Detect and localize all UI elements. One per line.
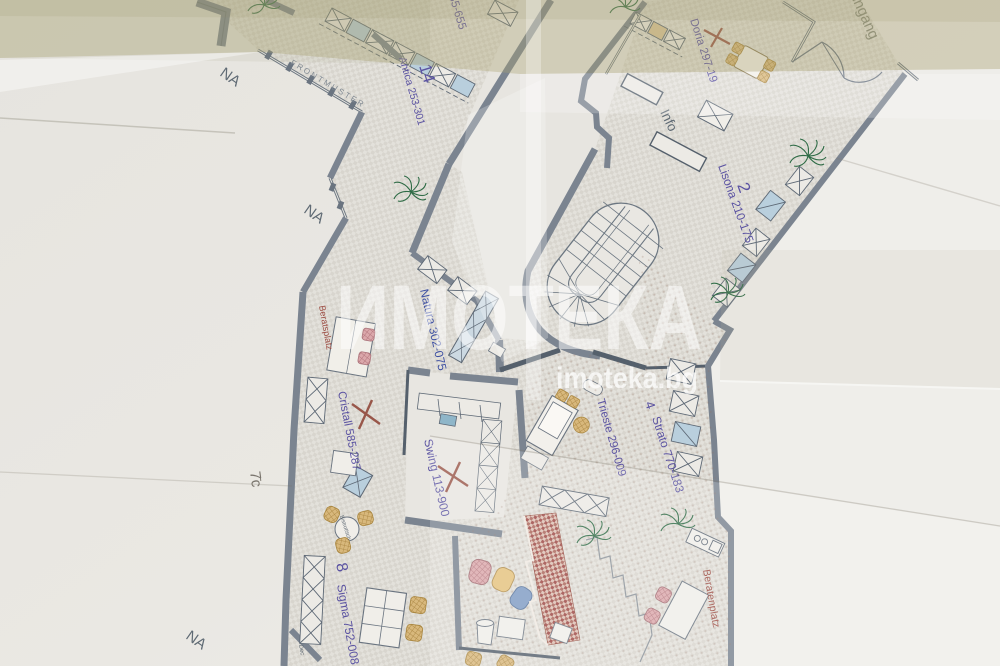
- svg-text:ИМОТЕКА: ИМОТЕКА: [336, 267, 702, 369]
- svg-text:7̄c: 7̄c: [246, 470, 265, 489]
- svg-text:imoteka.bg: imoteka.bg: [556, 362, 698, 395]
